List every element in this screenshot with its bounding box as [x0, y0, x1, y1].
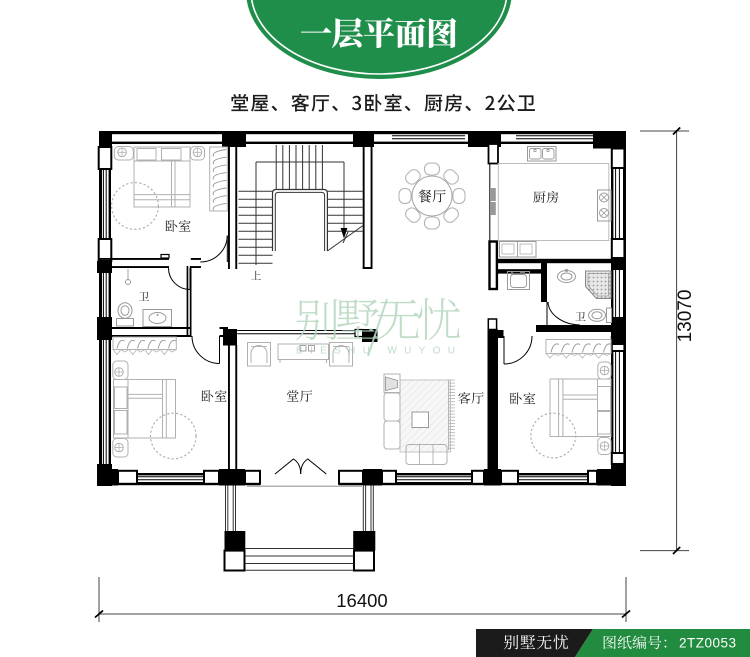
- svg-text:BIESHU WUYOU: BIESHU WUYOU: [296, 346, 462, 357]
- svg-text:2TZ0053: 2TZ0053: [679, 636, 737, 651]
- svg-text:13070: 13070: [675, 290, 696, 343]
- svg-text:16400: 16400: [336, 590, 387, 611]
